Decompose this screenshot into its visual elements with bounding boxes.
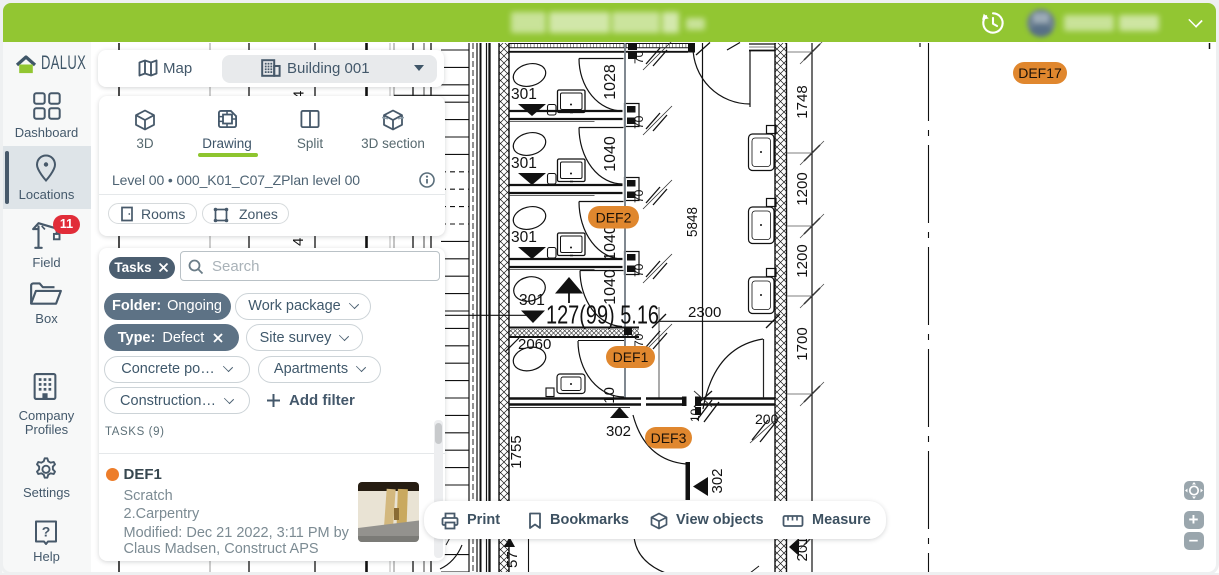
svg-text:301: 301	[511, 86, 537, 103]
svg-text:1040: 1040	[602, 225, 619, 261]
svg-text:DEF3: DEF3	[651, 430, 687, 446]
svg-text:302: 302	[709, 468, 726, 493]
svg-text:1700: 1700	[794, 327, 811, 360]
svg-text:70: 70	[632, 189, 646, 203]
svg-text:301: 301	[511, 155, 537, 172]
svg-text:1200: 1200	[794, 172, 811, 205]
svg-text:70: 70	[632, 263, 646, 277]
svg-text:301: 301	[519, 292, 545, 309]
svg-text:1200: 1200	[794, 244, 811, 277]
svg-text:DEF2: DEF2	[596, 209, 632, 225]
svg-text:70: 70	[632, 115, 646, 129]
svg-text:4: 4	[290, 238, 307, 246]
svg-text:1755: 1755	[508, 435, 525, 468]
svg-text:2300: 2300	[688, 304, 721, 321]
svg-text:DEF1: DEF1	[613, 349, 649, 365]
svg-text:10: 10	[601, 387, 618, 404]
svg-text:70: 70	[632, 333, 646, 347]
svg-text:1748: 1748	[794, 85, 811, 118]
svg-text:DEF17: DEF17	[1018, 65, 1062, 81]
svg-text:1028: 1028	[602, 64, 619, 100]
svg-text:302: 302	[606, 423, 631, 440]
svg-text:?: ?	[42, 524, 51, 540]
svg-text:5848: 5848	[684, 207, 701, 237]
svg-text:1040: 1040	[602, 136, 619, 172]
svg-text:70: 70	[632, 50, 646, 64]
svg-text:127(99) 5.16: 127(99) 5.16	[546, 300, 659, 330]
svg-text:301: 301	[511, 229, 537, 246]
svg-text:10: 10	[688, 408, 702, 422]
svg-text:2060: 2060	[518, 336, 551, 353]
svg-text:57: 57	[504, 551, 521, 568]
